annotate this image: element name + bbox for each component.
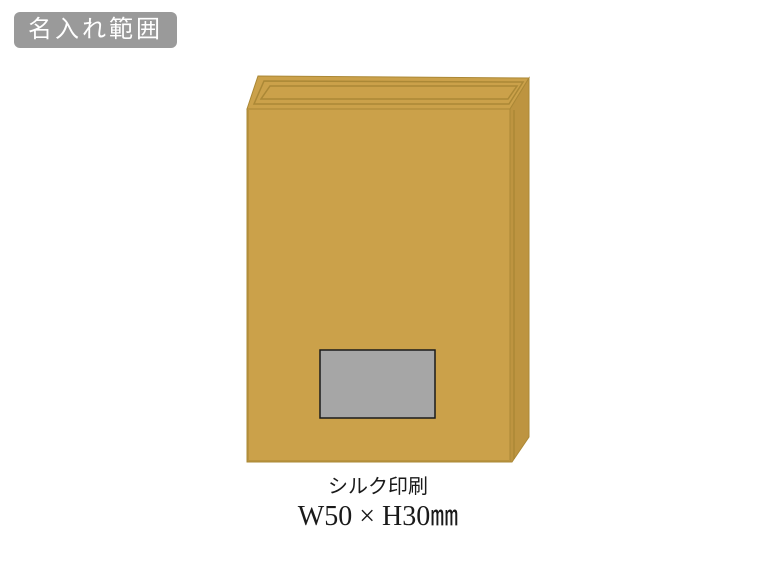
print-method-label: シルク印刷 xyxy=(178,474,578,501)
box-right-face xyxy=(510,78,529,462)
print-area-rect xyxy=(320,350,435,418)
print-spec-caption: シルク印刷 W50 × H30㎜ xyxy=(178,474,578,533)
page: 名入れ範囲 シルク印刷 W50 × H30㎜ xyxy=(0,0,760,570)
print-size-label: W50 × H30㎜ xyxy=(178,501,578,533)
